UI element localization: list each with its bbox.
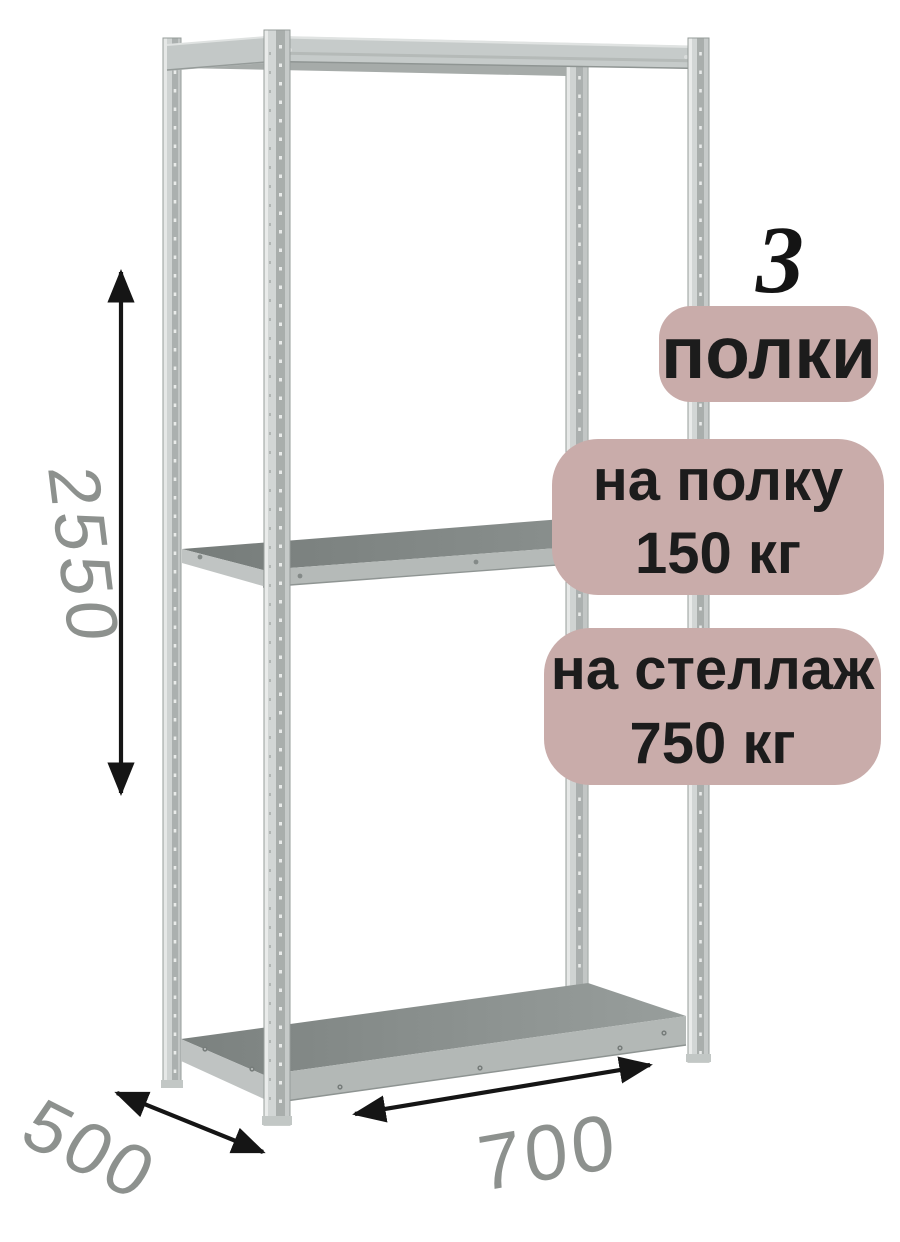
- shelf-bottom: [181, 983, 686, 1104]
- rack-illustration: [0, 0, 900, 1200]
- post-front-left: [262, 30, 292, 1125]
- shelf-load-line2: 150 кг: [635, 517, 801, 590]
- rack-load-line1: на стеллаж: [551, 633, 874, 706]
- product-card: 2550 500 700 3 полки на полку 150 кг на …: [0, 0, 900, 1200]
- shelves-badge: полки: [659, 306, 878, 402]
- post-back-left: [161, 38, 183, 1088]
- rack-load-line2: 750 кг: [629, 707, 795, 780]
- shelves-badge-label: полки: [661, 306, 876, 402]
- shelves-count: 3: [718, 210, 842, 310]
- shelf-load-badge: на полку 150 кг: [552, 439, 884, 595]
- rack-load-badge: на стеллаж 750 кг: [544, 628, 881, 785]
- shelf-load-line1: на полку: [593, 444, 844, 517]
